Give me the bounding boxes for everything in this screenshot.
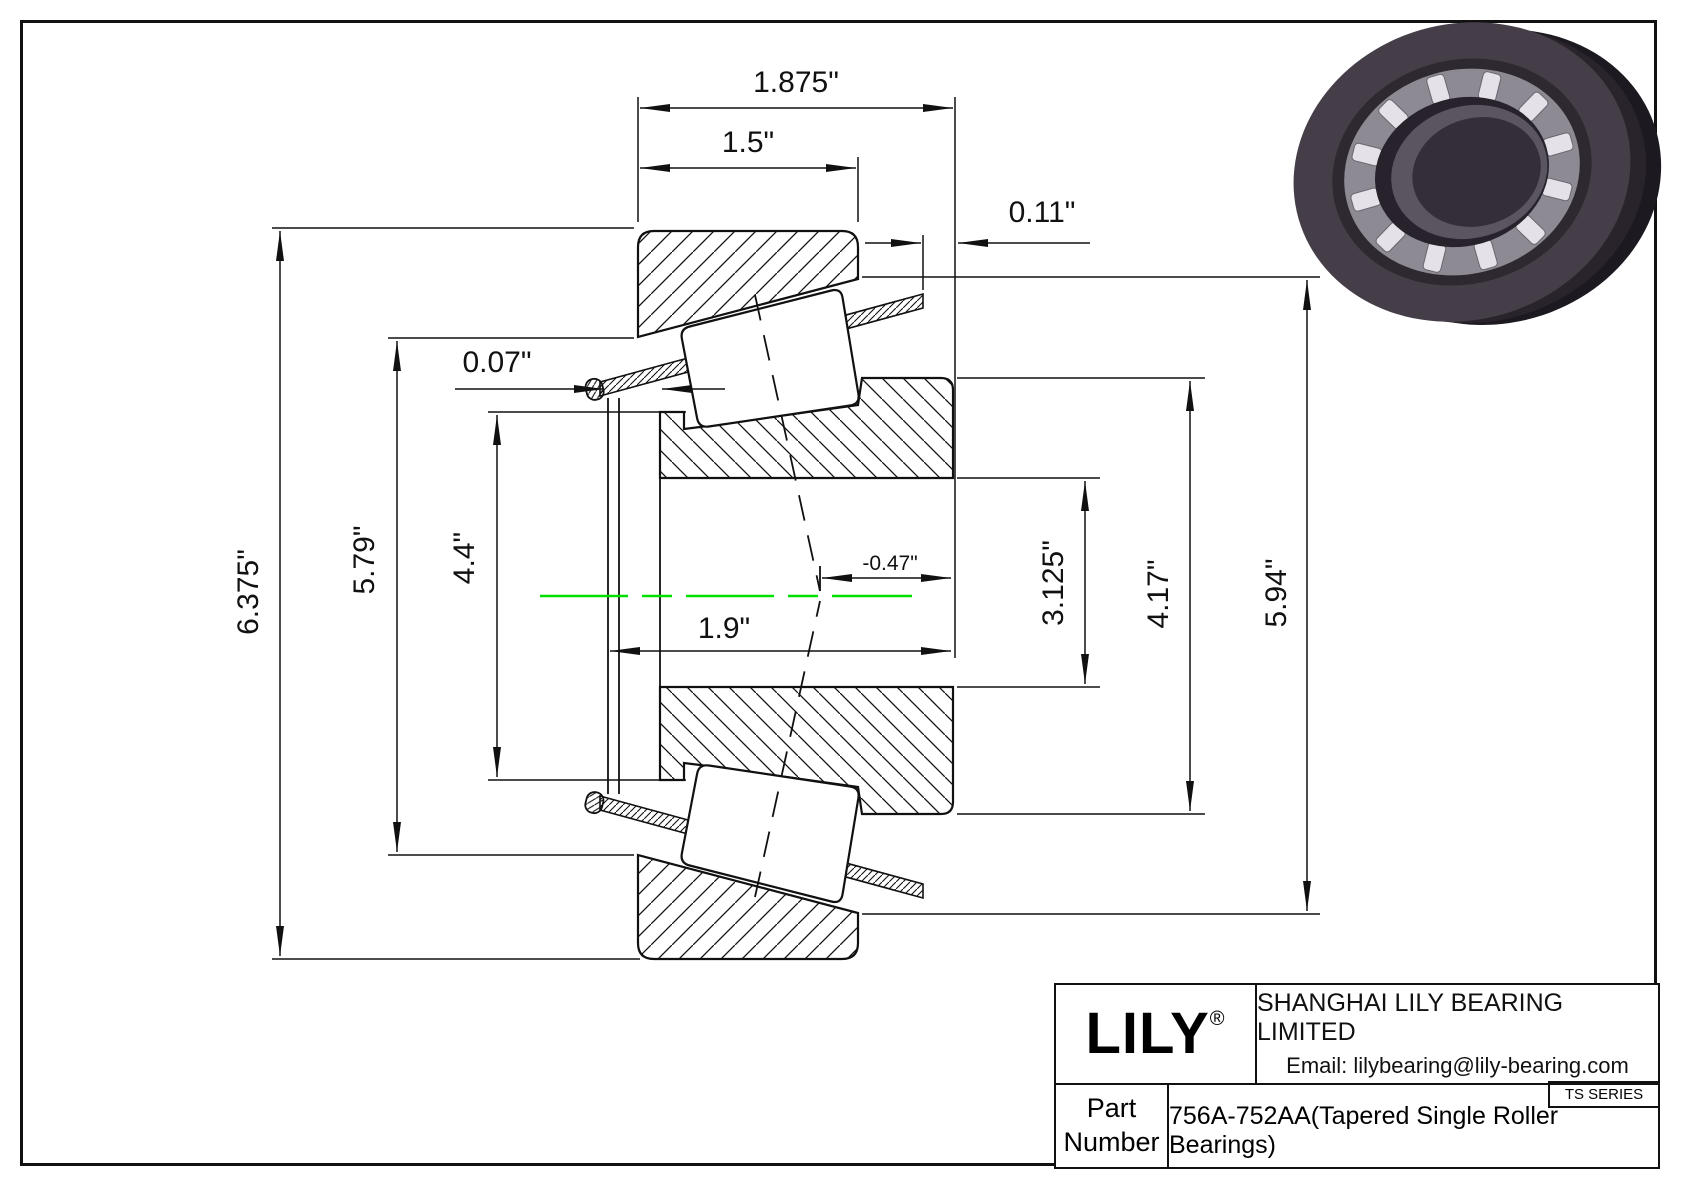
title-block: LILY® SHANGHAI LILY BEARING LIMITED Emai… [1054,983,1660,1169]
dim-label-cone-rib-diameter: 4.17" [1142,559,1175,628]
series-badge: TS SERIES [1548,1081,1660,1108]
dim-label-effective-center: -0.47" [862,552,917,575]
registered-trademark-icon: ® [1210,1008,1226,1030]
title-block-row-part: Part Number TS SERIES 756A-752AA(Tapered… [1056,1083,1658,1169]
title-block-row-company: LILY® SHANGHAI LILY BEARING LIMITED Emai… [1056,985,1658,1085]
bearing-3d-render [1258,0,1684,373]
dim-label-cage-lip: 0.07" [462,346,531,379]
part-number-label: Part Number [1056,1083,1169,1169]
dim-label-cage-outer-diameter: 5.79" [348,525,381,594]
part-number-value: 756A-752AA(Tapered Single Roller Bearing… [1169,1102,1658,1160]
company-cell: SHANGHAI LILY BEARING LIMITED Email: lil… [1257,985,1658,1083]
dim-label-cone-step-diameter: 4.4" [448,532,481,584]
dim-label-cage-protrusion: 0.11" [1009,196,1076,229]
brand-logo-cell: LILY® [1056,985,1257,1083]
dim-label-outer-diameter: 6.375" [232,549,265,635]
dim-label-bore-diameter: 3.125" [1037,540,1070,626]
dim-label-cone-width: 1.9" [698,612,750,645]
dim-label-cup-width: 1.5" [722,126,774,159]
dim-label-total-width: 1.875" [753,66,839,99]
part-number-cell: TS SERIES 756A-752AA(Tapered Single Roll… [1169,1083,1658,1169]
company-name: SHANGHAI LILY BEARING LIMITED [1257,989,1658,1047]
company-email: Email: lilybearing@lily-bearing.com [1286,1053,1629,1079]
dim-label-cup-race-diameter: 5.94" [1260,558,1293,627]
brand-logo: LILY® [1085,1005,1225,1063]
part-label-line1: Part [1087,1092,1137,1126]
part-label-line2: Number [1063,1126,1159,1160]
drawing-sheet: 1.875" 1.5" 0.11" 0.07" 1.9" -0.47" 6.37… [0,0,1684,1191]
